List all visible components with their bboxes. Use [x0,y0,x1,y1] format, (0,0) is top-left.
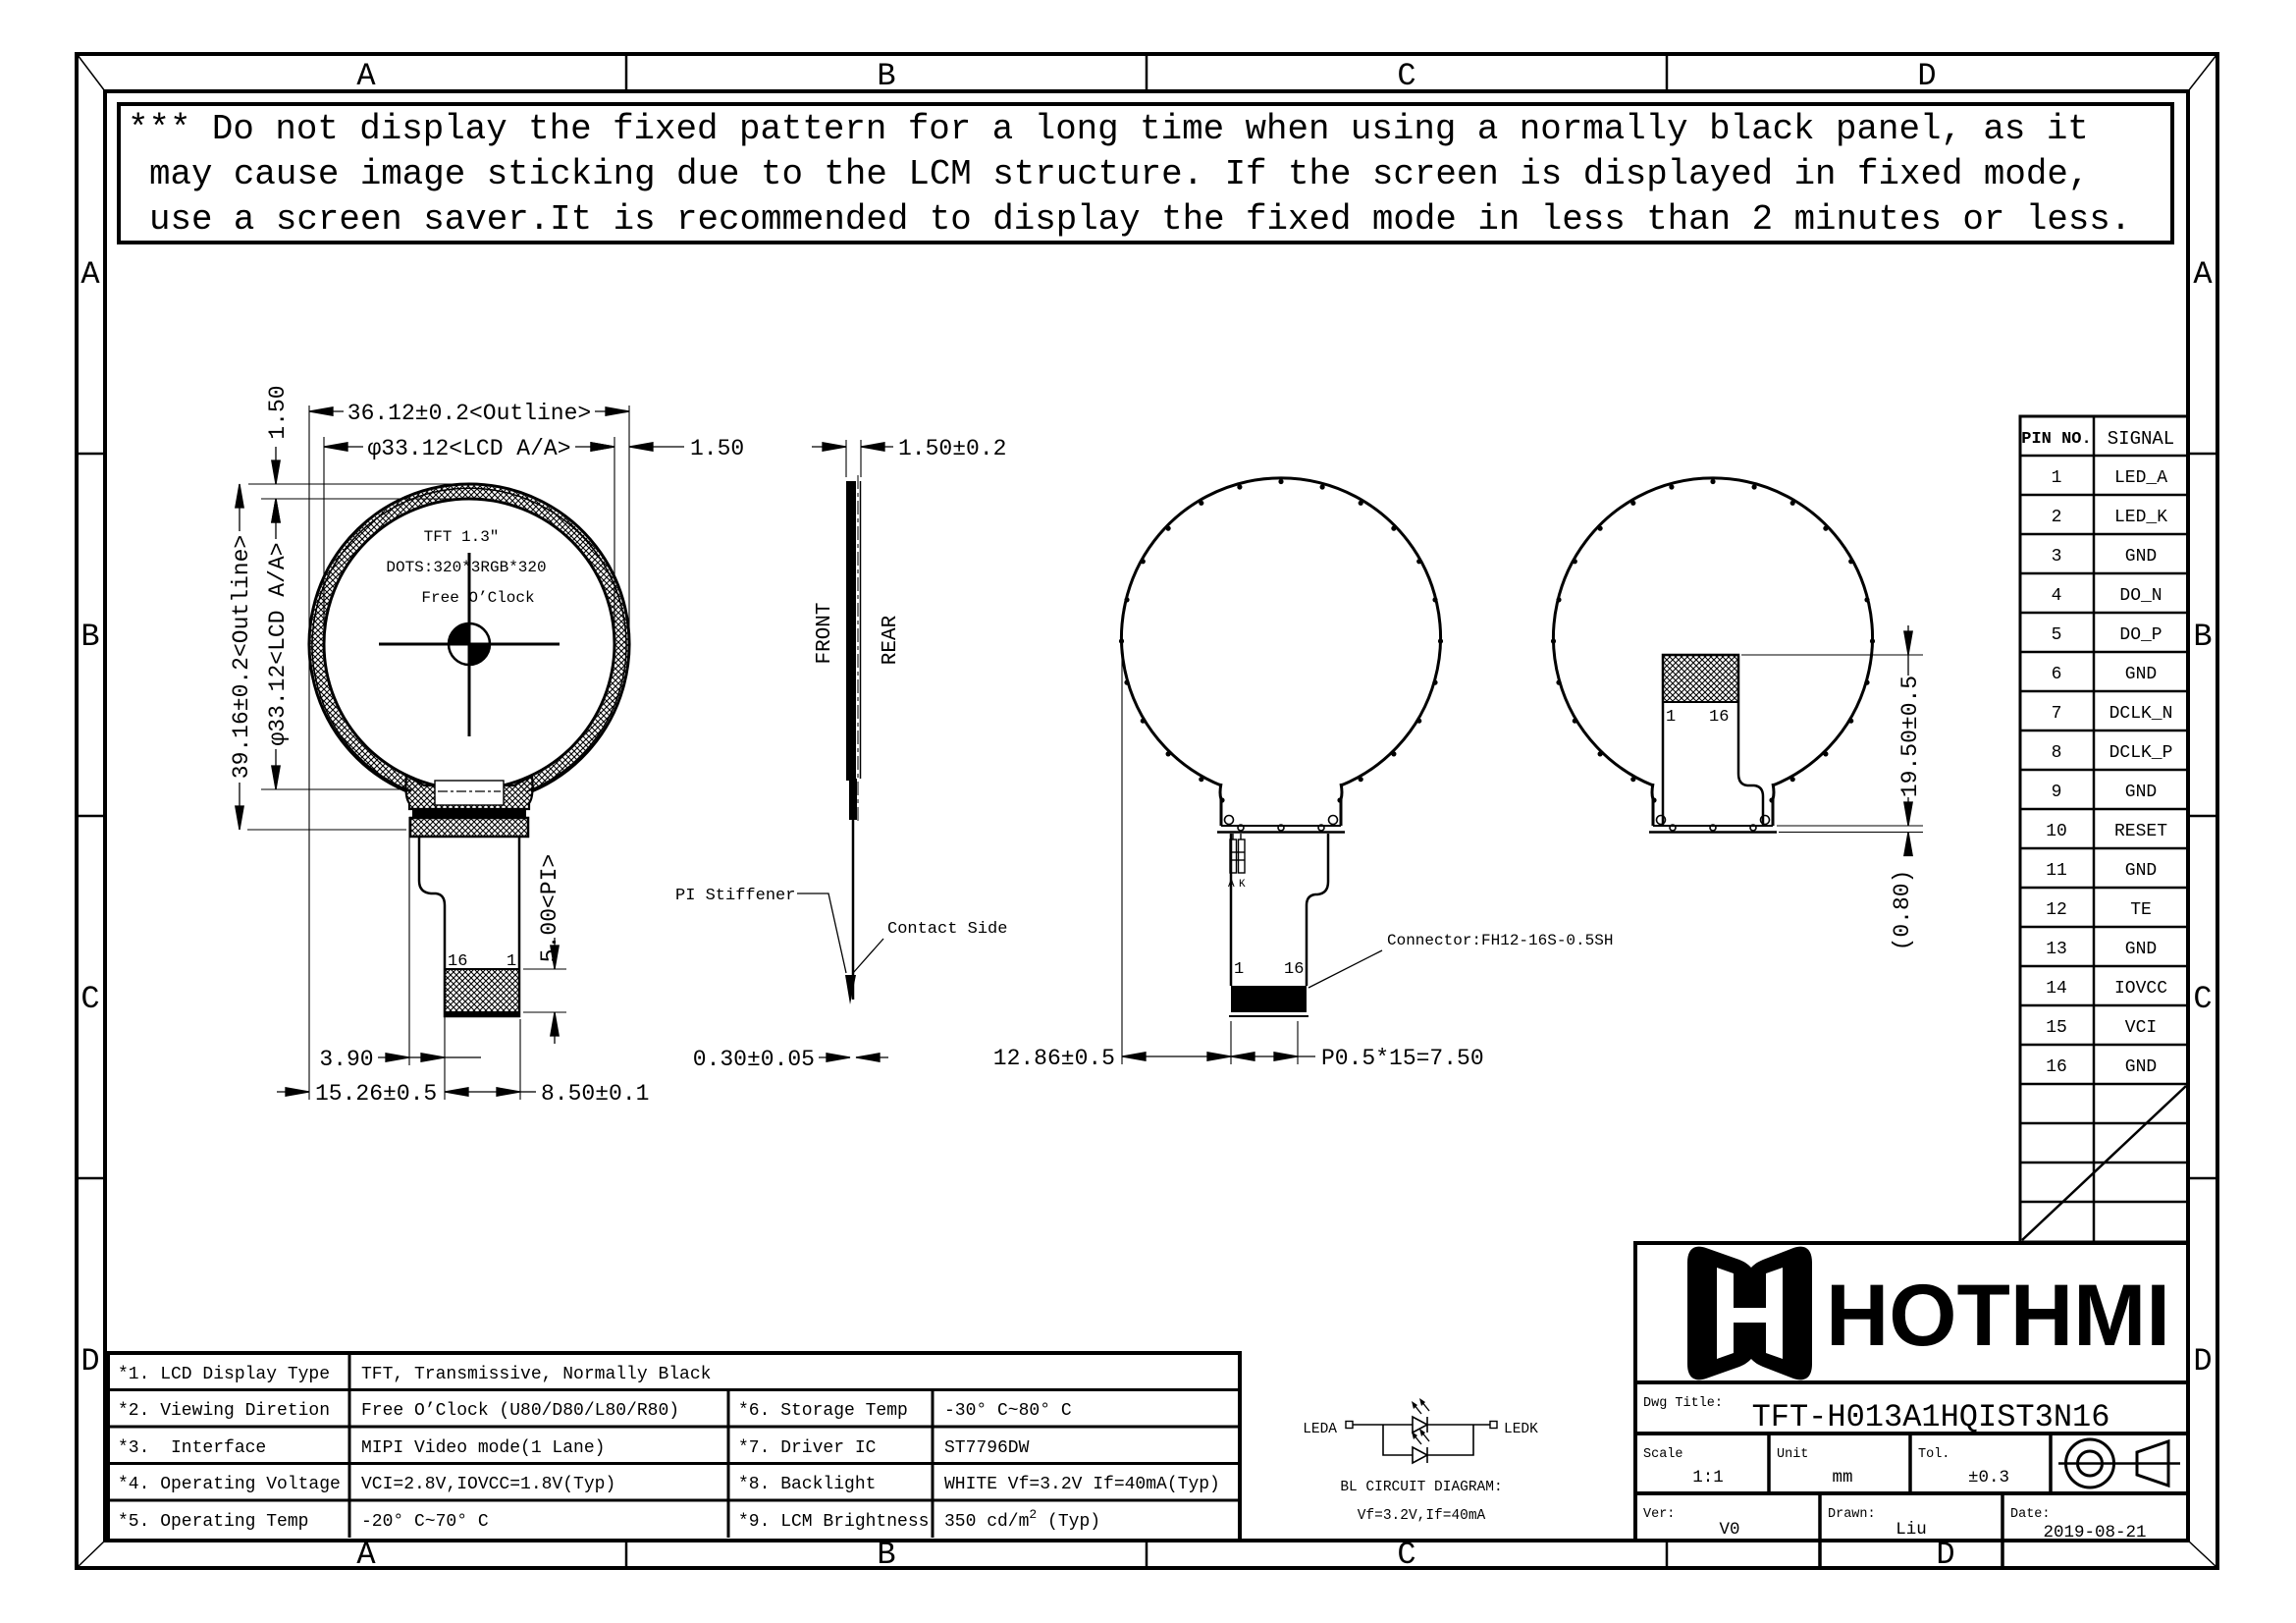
svg-text:D: D [80,1343,99,1380]
svg-text:12.86±0.5: 12.86±0.5 [993,1046,1115,1071]
svg-text:39.16±0.2<Outline>: 39.16±0.2<Outline> [229,535,254,779]
svg-text:14: 14 [2046,979,2067,999]
svg-text:GND: GND [2125,547,2157,567]
svg-text:*4. Operating Voltage: *4. Operating Voltage [118,1475,341,1494]
svg-text:±0.3: ±0.3 [1968,1468,2009,1488]
svg-text:16: 16 [2046,1057,2067,1077]
svg-text:Connector:FH12-16S-0.5SH: Connector:FH12-16S-0.5SH [1387,932,1613,949]
svg-text:A: A [80,256,100,293]
svg-text:9: 9 [2052,783,2062,802]
svg-text:LED_K: LED_K [2114,508,2167,527]
svg-text:DOTS:320*3RGB*320: DOTS:320*3RGB*320 [386,559,546,576]
svg-text:C: C [1397,58,1415,94]
svg-text:REAR: REAR [880,615,902,665]
svg-text:Ver:: Ver: [1643,1507,1675,1522]
svg-text:RESET: RESET [2114,822,2167,841]
svg-text:GND: GND [2125,861,2157,881]
svg-text:Vf=3.2V,If=40mA: Vf=3.2V,If=40mA [1358,1508,1486,1524]
svg-text:LED_A: LED_A [2114,468,2167,488]
svg-text:C: C [1397,1537,1415,1573]
svg-text:V0: V0 [1719,1520,1739,1540]
svg-text:TFT 1.3″: TFT 1.3″ [424,528,500,546]
svg-text:-30° C~80° C: -30° C~80° C [944,1401,1072,1421]
svg-text:16: 16 [1709,708,1729,727]
svg-text:GND: GND [2125,940,2157,959]
svg-text:*9. LCM Brightness: *9. LCM Brightness [738,1512,929,1532]
svg-text:P0.5*15=7.50: P0.5*15=7.50 [1321,1046,1484,1071]
svg-text:15.26±0.5: 15.26±0.5 [315,1081,437,1107]
svg-text:WHITE Vf=3.2V If=40mA(Typ): WHITE Vf=3.2V If=40mA(Typ) [944,1475,1220,1494]
svg-text:DCLK_N: DCLK_N [2109,704,2173,724]
svg-text:HOTHMI: HOTHMI [1826,1266,2170,1364]
svg-text:11: 11 [2046,861,2067,881]
svg-text:13: 13 [2046,940,2067,959]
svg-text:DO_P: DO_P [2119,625,2162,645]
svg-text:10: 10 [2046,822,2067,841]
svg-text:36.12±0.2<Outline>: 36.12±0.2<Outline> [347,401,591,426]
svg-text:Scale: Scale [1643,1447,1683,1462]
svg-text:SIGNAL: SIGNAL [2108,428,2174,450]
svg-text:4: 4 [2052,586,2062,606]
svg-text:may cause image sticking due t: may cause image sticking due to the LCM … [149,154,2089,194]
svg-text:Dwg Title:: Dwg Title: [1643,1396,1723,1411]
svg-text:*** Do not display the fixed p: *** Do not display the fixed pattern for… [128,109,2089,149]
svg-text:*3. Interface: *3. Interface [118,1438,266,1458]
svg-text:mm: mm [1832,1468,1852,1488]
svg-text:K: K [1239,879,1246,891]
svg-text:5: 5 [2052,625,2062,645]
svg-text:1:1: 1:1 [1692,1468,1724,1488]
svg-text:LEDK: LEDK [1504,1422,1538,1437]
svg-text:TFT, Transmissive, Normally Bl: TFT, Transmissive, Normally Black [361,1365,711,1384]
svg-text:φ33.12<LCD A/A>: φ33.12<LCD A/A> [265,542,291,745]
svg-text:GND: GND [2125,783,2157,802]
svg-text:TE: TE [2130,900,2152,920]
svg-text:TFT-H013A1HQIST3N16: TFT-H013A1HQIST3N16 [1752,1399,2110,1435]
svg-text:12: 12 [2046,900,2067,920]
svg-text:DO_N: DO_N [2119,586,2162,606]
svg-text:*6. Storage Temp: *6. Storage Temp [738,1401,908,1421]
svg-text:*7. Driver IC: *7. Driver IC [738,1438,877,1458]
svg-text:B: B [2193,619,2212,655]
svg-text:19.50±0.5: 19.50±0.5 [1897,676,1923,797]
svg-text:15: 15 [2046,1018,2067,1038]
svg-text:*2. Viewing Diretion: *2. Viewing Diretion [118,1401,330,1421]
svg-text:1.50: 1.50 [690,436,744,461]
svg-text:B: B [877,58,895,94]
svg-text:6: 6 [2052,665,2062,684]
svg-text:ST7796DW: ST7796DW [944,1438,1030,1458]
svg-text:A: A [356,58,376,94]
svg-text:LEDA: LEDA [1303,1422,1337,1437]
svg-text:1: 1 [1234,960,1244,979]
svg-text:-20° C~70° C: -20° C~70° C [361,1512,489,1532]
svg-text:Free O’Clock: Free O’Clock [421,589,534,607]
svg-text:*1. LCD Display Type: *1. LCD Display Type [118,1365,330,1384]
svg-text:(0.80): (0.80) [1890,870,1915,951]
svg-text:A: A [1228,879,1235,891]
svg-text:FRONT: FRONT [814,602,836,664]
svg-text:Drawn:: Drawn: [1828,1507,1876,1522]
svg-text:C: C [2193,981,2212,1017]
svg-text:Date:: Date: [2010,1507,2051,1522]
svg-text:16: 16 [1284,960,1304,979]
svg-text:Free O’Clock (U80/D80/L80/R80): Free O’Clock (U80/D80/L80/R80) [361,1401,679,1421]
svg-text:16: 16 [448,952,467,971]
svg-text:5.00<PI>: 5.00<PI> [537,854,562,962]
svg-text:PI Stiffener: PI Stiffener [675,887,795,905]
svg-text:1: 1 [507,952,516,971]
svg-text:PIN NO.: PIN NO. [2021,430,2091,449]
svg-text:φ33.12<LCD A/A>: φ33.12<LCD A/A> [367,436,570,461]
svg-text:VCI: VCI [2125,1018,2157,1038]
svg-text:D: D [2193,1343,2212,1380]
svg-text:MIPI Video mode(1 Lane): MIPI Video mode(1 Lane) [361,1438,605,1458]
svg-text:VCI=2.8V,IOVCC=1.8V(Typ): VCI=2.8V,IOVCC=1.8V(Typ) [361,1475,615,1494]
svg-text:3: 3 [2052,547,2062,567]
svg-text:Liu: Liu [1896,1520,1927,1540]
svg-text:Tol.: Tol. [1918,1447,1949,1462]
svg-text:*5. Operating Temp: *5. Operating Temp [118,1512,308,1532]
svg-text:7: 7 [2052,704,2062,724]
svg-text:IOVCC: IOVCC [2114,979,2167,999]
svg-text:8: 8 [2052,743,2062,763]
svg-text:2: 2 [2052,508,2062,527]
svg-text:Contact Side: Contact Side [887,920,1007,939]
svg-text:8.50±0.1: 8.50±0.1 [541,1081,649,1107]
svg-text:B: B [80,619,99,655]
svg-text:Unit: Unit [1777,1447,1808,1462]
svg-text:1: 1 [2052,468,2062,488]
svg-text:GND: GND [2125,665,2157,684]
svg-text:DCLK_P: DCLK_P [2109,743,2173,763]
svg-text:A: A [2193,256,2213,293]
svg-text:*8. Backlight: *8. Backlight [738,1475,876,1494]
svg-text:0.30±0.05: 0.30±0.05 [693,1047,815,1072]
svg-text:2019-08-21: 2019-08-21 [2043,1523,2146,1542]
svg-text:1: 1 [1666,708,1676,727]
svg-text:BL CIRCUIT DIAGRAM:: BL CIRCUIT DIAGRAM: [1340,1480,1502,1495]
svg-text:1.50±0.2: 1.50±0.2 [898,436,1006,461]
svg-text:GND: GND [2125,1057,2157,1077]
svg-text:3.90: 3.90 [319,1047,373,1072]
svg-text:1.50: 1.50 [265,385,291,439]
svg-text:C: C [80,981,99,1017]
svg-text:use a screen saver.It is recom: use a screen saver.It is recommended to … [149,199,2131,240]
svg-text:D: D [1917,58,1936,94]
